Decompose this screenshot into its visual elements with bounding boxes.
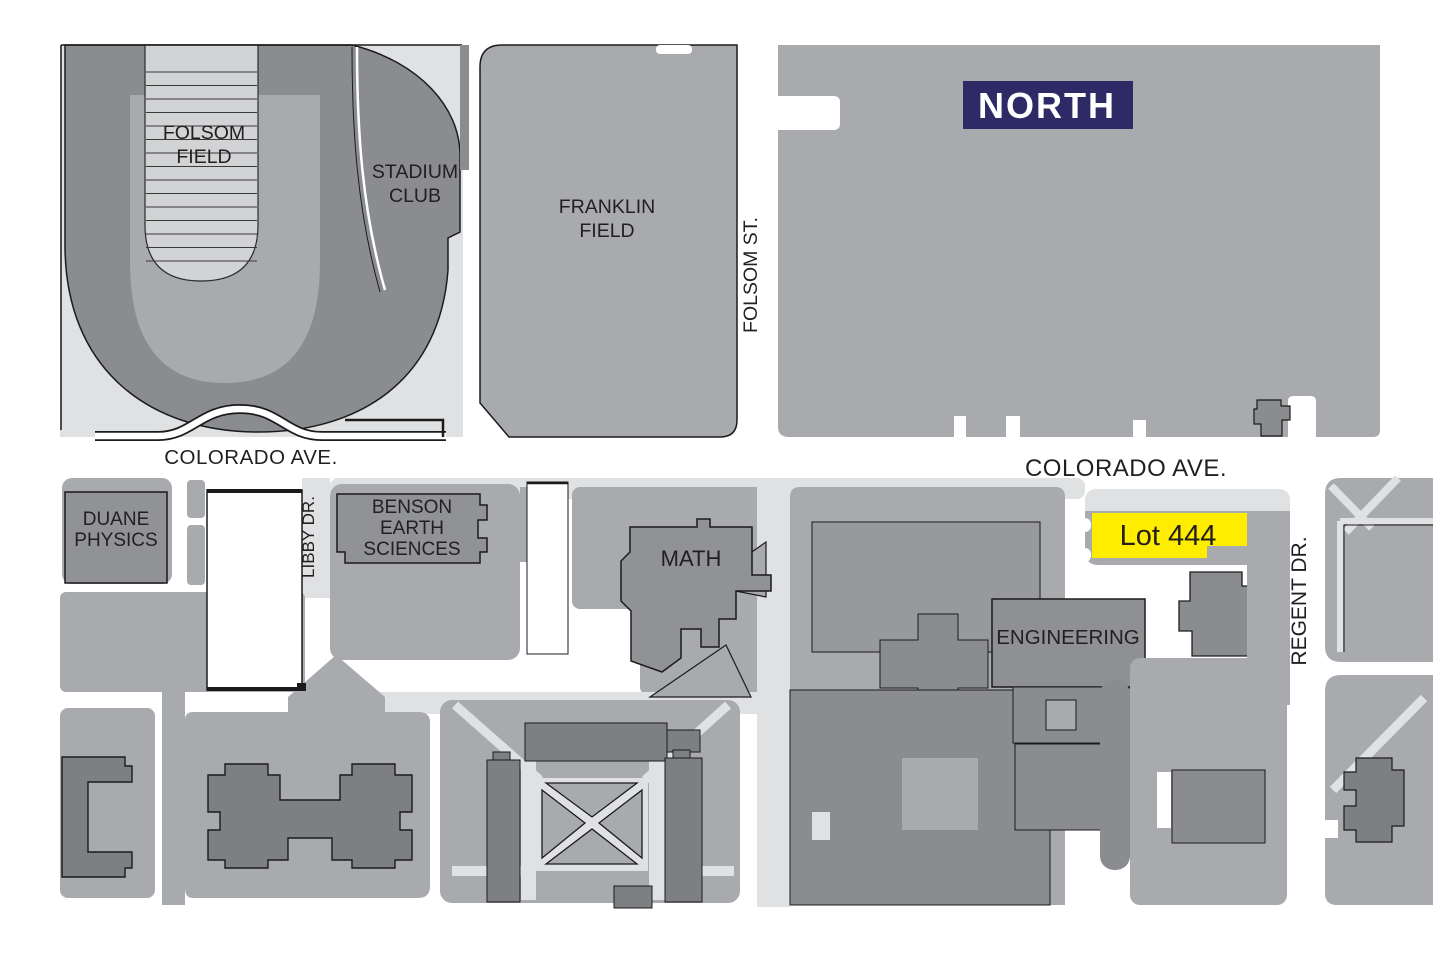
campus-map: NORTH xyxy=(0,0,1433,961)
stadium-east-sliver xyxy=(460,45,469,170)
quad-path-w xyxy=(521,760,536,900)
east-court-building xyxy=(1172,770,1265,843)
franklin-top-notch xyxy=(656,45,692,54)
regent-east-block-south xyxy=(1325,675,1433,905)
east-tower xyxy=(665,758,702,902)
east-court-gap xyxy=(1157,772,1171,828)
label-libby-dr: LIBBY DR. xyxy=(299,496,318,578)
label-colorado-ave-east: COLORADO AVE. xyxy=(1025,455,1227,482)
label-duane-line1: DUANE xyxy=(83,509,150,530)
label-regent-dr: REGENT DR. xyxy=(1288,536,1311,665)
south-campus xyxy=(60,478,1433,908)
regent-block-notch xyxy=(1325,820,1338,838)
label-stadium-club-line1: STADIUM xyxy=(372,161,458,183)
label-engineering: ENGINEERING xyxy=(996,626,1140,649)
stadium-zone xyxy=(60,45,469,437)
label-benson-line1: BENSON xyxy=(372,497,452,518)
lot444-east-strip xyxy=(1247,513,1290,705)
label-lot-444: Lot 444 xyxy=(1120,520,1217,552)
label-franklin-field-line1: FRANKLIN xyxy=(559,196,655,218)
label-duane-line2: PHYSICS xyxy=(74,530,157,551)
regent-east-block-north xyxy=(1325,478,1433,662)
east-wing-strip xyxy=(1100,680,1130,870)
label-benson-line2: EARTH xyxy=(380,518,444,539)
label-folsom-field-line1: FOLSOM xyxy=(163,122,245,144)
label-folsom-field-line2: FIELD xyxy=(176,146,231,168)
parking-lot-math xyxy=(527,482,568,654)
lot444-notch-a xyxy=(1079,518,1091,532)
label-colorado-ave-west: COLORADO AVE. xyxy=(164,446,338,469)
engineering-niche xyxy=(812,812,830,840)
label-franklin-field-line2: FIELD xyxy=(579,220,634,242)
north-badge-label: NORTH xyxy=(978,85,1116,126)
label-stadium-club-line2: CLUB xyxy=(389,185,441,207)
lot444-notch-b xyxy=(1079,548,1091,562)
quad-north-hall-annex xyxy=(667,730,700,752)
label-benson-line3: SCIENCES xyxy=(363,539,460,560)
quad-north-hall xyxy=(525,723,667,761)
north-compass-badge: NORTH xyxy=(963,81,1133,129)
quad-path-e xyxy=(649,760,665,900)
engineering-annex-court xyxy=(1046,700,1076,730)
engineering-courtyard xyxy=(902,758,978,830)
quad-south-annex xyxy=(614,886,652,908)
label-math: MATH xyxy=(661,546,722,571)
lot444-sidewalk xyxy=(1085,489,1290,511)
pointed-strip xyxy=(162,681,185,905)
west-tower xyxy=(487,760,520,902)
parking-lot-west xyxy=(207,490,306,691)
small-strip-b xyxy=(187,525,205,585)
label-folsom-st: FOLSOM ST. xyxy=(740,217,762,333)
campus-map-page: NORTH xyxy=(0,0,1433,961)
small-strip-a xyxy=(187,480,205,518)
